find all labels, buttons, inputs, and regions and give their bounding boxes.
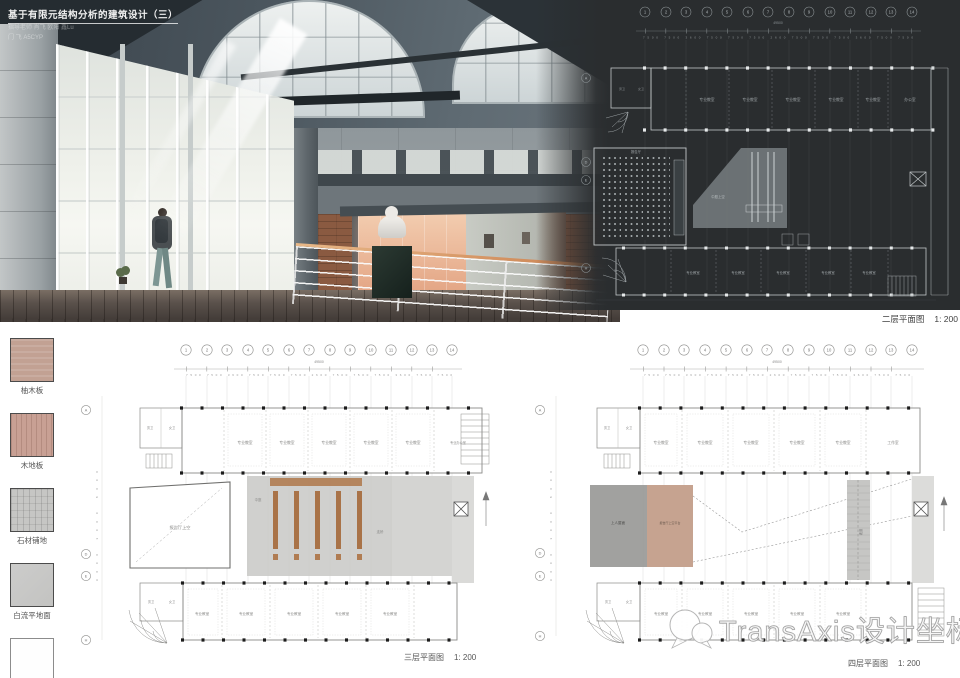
svg-text:D: D <box>539 552 542 556</box>
auditorium-label: 报告厅 <box>631 149 642 154</box>
svg-text:E: E <box>585 179 588 183</box>
corridor-strip <box>912 476 934 583</box>
plant-pot <box>119 277 127 284</box>
credit-line: 门 飞 A5CYP <box>8 34 178 44</box>
svg-text:专业教室: 专业教室 <box>287 611 302 616</box>
second-floor-plan-panel: 1234567891011121314 49500 7500 7500 3600… <box>536 0 960 310</box>
svg-text:13: 13 <box>889 348 894 353</box>
svg-text:专业教室: 专业教室 <box>237 440 252 445</box>
svg-text:2: 2 <box>663 348 666 353</box>
svg-text:11: 11 <box>389 348 394 353</box>
caption-scale: 1: 200 <box>934 314 958 324</box>
svg-text:女卫: 女卫 <box>169 599 176 604</box>
dimension-string: 7500 7500 3600 7500 7500 7500 2600 7500 … <box>643 36 913 40</box>
material-swatch-leveling <box>10 563 54 607</box>
legend-item: 柚木板 <box>8 338 56 396</box>
grid-bubbles-left <box>535 405 544 640</box>
svg-text:专业教室: 专业教室 <box>789 440 804 445</box>
dimension-string: 7500 7500 3600 7500 7500 7500 2600 7500 … <box>186 373 452 377</box>
svg-text:12: 12 <box>410 348 415 353</box>
svg-text:8: 8 <box>787 348 790 353</box>
grid-bubbles-top <box>640 7 917 17</box>
svg-text:专业教室: 专业教室 <box>828 97 843 102</box>
chat-bubble-logo-icon <box>668 608 714 650</box>
room-labels-bottom: 专业教室专业教室专业教室专业教室专业教室 <box>686 270 876 275</box>
svg-text:10: 10 <box>369 348 374 353</box>
svg-text:专业教室: 专业教室 <box>279 440 294 445</box>
total-dimension: 49500 <box>314 360 324 364</box>
grid-letter-labels: ADEH <box>539 409 542 639</box>
grid-bubbles-top <box>638 345 917 355</box>
title-block: 基于有限元结构分析的建筑设计（三） 指导老师 肖飞 欧阳 鑫Lu 门 飞 A5C… <box>8 5 178 43</box>
svg-text:3: 3 <box>685 10 688 15</box>
svg-text:11: 11 <box>848 348 853 353</box>
svg-text:7: 7 <box>308 348 311 353</box>
svg-text:A: A <box>85 409 88 413</box>
svg-text:9: 9 <box>808 10 811 15</box>
svg-text:办公室: 办公室 <box>904 97 916 102</box>
total-dimension: 49500 <box>773 21 783 25</box>
terrace-wood <box>647 485 693 567</box>
third-floor-plan-panel: 1234567891011121314 49500 7500 7500 3600… <box>62 336 502 659</box>
atrium-paving-light <box>392 476 452 576</box>
total-dimension: 49500 <box>772 360 782 364</box>
svg-text:男卫: 男卫 <box>619 86 625 91</box>
svg-text:13: 13 <box>889 10 894 15</box>
svg-text:专业教室: 专业教室 <box>654 611 669 616</box>
svg-text:14: 14 <box>910 10 915 15</box>
third-floor-plan-drawing: 1234567891011121314 49500 7500 7500 3600… <box>62 336 502 654</box>
v-dimension-string: 9000 3000 8000 <box>549 471 553 581</box>
svg-text:3: 3 <box>226 348 229 353</box>
page-title: 基于有限元结构分析的建筑设计（三） <box>8 7 178 24</box>
atrium-label: 中庭上空 <box>711 194 725 199</box>
stair-fan <box>129 608 167 643</box>
svg-text:专业教室: 专业教室 <box>335 611 350 616</box>
grid-bubbles-top <box>181 345 457 355</box>
svg-text:13: 13 <box>430 348 435 353</box>
stair-small-top <box>604 454 630 468</box>
wc-labels: 男卫女卫 <box>148 599 176 604</box>
bridge-label: 连桥 <box>377 529 384 534</box>
legend-item: 木地板 <box>8 413 56 471</box>
wc-labels: 男卫女卫 <box>604 425 633 430</box>
svg-text:4: 4 <box>704 348 707 353</box>
caption-scale: 1: 200 <box>898 659 920 668</box>
stair-fan <box>586 608 624 643</box>
svg-text:专业教室: 专业教室 <box>239 611 254 616</box>
svg-text:6: 6 <box>746 348 749 353</box>
svg-text:10: 10 <box>828 10 833 15</box>
svg-text:女卫: 女卫 <box>638 86 644 91</box>
svg-text:专业教室: 专业教室 <box>405 440 420 445</box>
person-leg <box>162 248 172 288</box>
svg-text:7: 7 <box>766 348 769 353</box>
mid-stairs <box>782 234 809 245</box>
legend-label: 白流平地面 <box>8 610 56 621</box>
svg-text:12: 12 <box>869 348 874 353</box>
svg-text:专业教室: 专业教室 <box>776 270 790 275</box>
svg-text:2: 2 <box>665 10 668 15</box>
bottom-wing <box>183 583 457 640</box>
concrete-pier <box>0 24 58 306</box>
wall-artwork <box>484 234 494 248</box>
svg-text:专业教室: 专业教室 <box>363 440 378 445</box>
svg-text:专业教室: 专业教室 <box>821 270 835 275</box>
elevator <box>454 502 468 516</box>
auditorium: 报告厅 <box>594 148 686 245</box>
svg-text:男卫: 男卫 <box>604 425 611 430</box>
svg-text:男卫: 男卫 <box>148 599 155 604</box>
legend-item: 石材铺地 <box>8 488 56 546</box>
material-legend: 柚木板 木地板 石材铺地 白流平地面 保留原材料 <box>8 338 56 678</box>
elevator <box>910 172 926 186</box>
grid-bubble-numbers: 1234567891011121314 <box>642 348 915 353</box>
svg-text:专业教室: 专业教室 <box>865 97 880 102</box>
right-wing <box>931 68 948 295</box>
material-swatch-stone <box>10 488 54 532</box>
presentation-board: 基于有限元结构分析的建筑设计（三） 指导老师 肖飞 欧阳 鑫Lu 门 飞 A5C… <box>0 0 960 678</box>
north-arrow <box>483 492 489 526</box>
svg-text:专业教室: 专业教室 <box>195 611 210 616</box>
svg-text:H: H <box>585 267 588 271</box>
v-dimension-string: 9000 3000 8000 <box>95 471 99 581</box>
north-arrow <box>941 497 947 531</box>
grid-bubbles-left <box>582 74 591 273</box>
svg-text:女卫: 女卫 <box>626 425 633 430</box>
credit-line: 指导老师 肖飞 欧阳 鑫Lu <box>8 24 178 34</box>
wc-labels: 男卫女卫 <box>147 425 176 430</box>
grid-letter-labels: ADEH <box>85 409 88 643</box>
svg-text:5: 5 <box>267 348 270 353</box>
potted-plant <box>114 266 132 284</box>
svg-text:专业教室: 专业教室 <box>383 611 398 616</box>
grid-letter-labels: ADEH <box>585 77 588 271</box>
svg-text:专业教室: 专业教室 <box>785 97 800 102</box>
fourth-floor-caption: 四层平面图1: 200 <box>848 658 920 669</box>
room-labels-top: 专业教室专业教室专业教室专业教室专业教室 办公室 <box>699 97 915 102</box>
svg-text:8: 8 <box>329 348 332 353</box>
svg-text:4: 4 <box>706 10 709 15</box>
roof-deck-grey <box>590 485 647 567</box>
svg-text:8: 8 <box>788 10 791 15</box>
svg-text:14: 14 <box>910 348 915 353</box>
svg-text:1: 1 <box>642 348 645 353</box>
legend-label: 木地板 <box>8 460 56 471</box>
top-wing <box>611 68 931 130</box>
annex-bottom <box>140 583 183 621</box>
svg-text:4: 4 <box>247 348 250 353</box>
leaf <box>121 266 130 275</box>
svg-text:3: 3 <box>683 348 686 353</box>
grid-bubbles-left <box>81 405 90 644</box>
wc-labels: 男卫女卫 <box>605 599 633 604</box>
watermark-text: TransAxis设计坐标 <box>719 608 960 650</box>
svg-text:专业教室: 专业教室 <box>742 97 757 102</box>
svg-text:H: H <box>539 635 542 639</box>
svg-text:A: A <box>585 77 588 81</box>
svg-text:7: 7 <box>767 10 770 15</box>
caption-text: 二层平面图 <box>882 314 925 324</box>
svg-text:6: 6 <box>747 10 750 15</box>
svg-text:专业教室: 专业教室 <box>321 440 336 445</box>
material-swatch-original <box>10 638 54 678</box>
wall-artwork <box>522 232 530 244</box>
roof-label: 上人屋面 <box>611 520 626 525</box>
legend-label: 柚木板 <box>8 385 56 396</box>
svg-text:5: 5 <box>725 348 728 353</box>
svg-text:5: 5 <box>726 10 729 15</box>
grid-bubble-numbers: 1234567891011121314 <box>185 348 455 353</box>
annex-bottom <box>597 583 640 621</box>
material-swatch-wood-floor <box>10 413 54 457</box>
svg-text:专业教室: 专业教室 <box>699 97 714 102</box>
svg-text:H: H <box>85 639 88 643</box>
legend-item: 白流平地面 <box>8 563 56 621</box>
statue-head <box>385 206 398 219</box>
caption-text: 四层平面图 <box>848 659 888 668</box>
svg-text:D: D <box>585 161 588 165</box>
svg-text:专业教室: 专业教室 <box>743 440 758 445</box>
stair-right <box>888 276 916 296</box>
atrium-label: 中庭 <box>255 497 262 502</box>
legend-label: 石材铺地 <box>8 535 56 546</box>
watermark: TransAxis设计坐标 <box>668 608 960 650</box>
svg-text:11: 11 <box>848 10 853 15</box>
terrace-label: 报告厅上空平台 <box>659 520 680 525</box>
svg-text:专业教室: 专业教室 <box>686 270 700 275</box>
second-floor-caption: 二层平面图1: 200 <box>818 313 958 325</box>
svg-text:D: D <box>85 553 88 557</box>
svg-text:女卫: 女卫 <box>169 425 176 430</box>
ramp-label: 坡道 <box>858 528 863 535</box>
svg-text:专业教室: 专业教室 <box>731 270 745 275</box>
svg-text:14: 14 <box>450 348 455 353</box>
svg-text:9: 9 <box>349 348 352 353</box>
svg-text:E: E <box>85 575 88 579</box>
svg-text:2: 2 <box>206 348 209 353</box>
second-floor-plan-drawing: 1234567891011121314 49500 7500 7500 3600… <box>536 0 960 310</box>
interior-render-image <box>0 0 620 322</box>
corridor-strip <box>452 476 474 583</box>
material-swatch-teak <box>10 338 54 382</box>
legend-item: 保留原材料 <box>8 638 56 678</box>
void-label: 报告厅上空 <box>170 524 191 531</box>
wc-labels: 男卫女卫 <box>619 86 644 91</box>
svg-text:女卫: 女卫 <box>626 599 633 604</box>
svg-text:12: 12 <box>869 10 874 15</box>
svg-text:A: A <box>539 409 542 413</box>
svg-text:工作室: 工作室 <box>887 440 899 445</box>
svg-text:9: 9 <box>808 348 811 353</box>
grid-bubble-numbers: 1234567891011121314 <box>644 10 915 15</box>
svg-text:1: 1 <box>185 348 188 353</box>
auditorium-seats <box>600 156 670 240</box>
svg-text:男卫: 男卫 <box>605 599 612 604</box>
svg-text:男卫: 男卫 <box>147 425 154 430</box>
statue-pedestal <box>372 246 412 298</box>
svg-text:6: 6 <box>288 348 291 353</box>
elevator <box>914 502 928 516</box>
statue-bust <box>378 216 406 238</box>
bottom-wing <box>616 248 926 295</box>
svg-text:10: 10 <box>827 348 832 353</box>
svg-text:1: 1 <box>644 10 647 15</box>
svg-text:专业教室: 专业教室 <box>653 440 668 445</box>
svg-text:E: E <box>539 575 542 579</box>
svg-text:专业教室: 专业教室 <box>835 440 850 445</box>
svg-text:专业教室: 专业教室 <box>697 440 712 445</box>
stair-small-top <box>146 454 172 468</box>
fourth-floor-plan-drawing: 1234567891011121314 49500 7500 7500 3600… <box>512 336 957 654</box>
svg-text:专业教室: 专业教室 <box>862 270 876 275</box>
mullion-post <box>120 44 125 302</box>
